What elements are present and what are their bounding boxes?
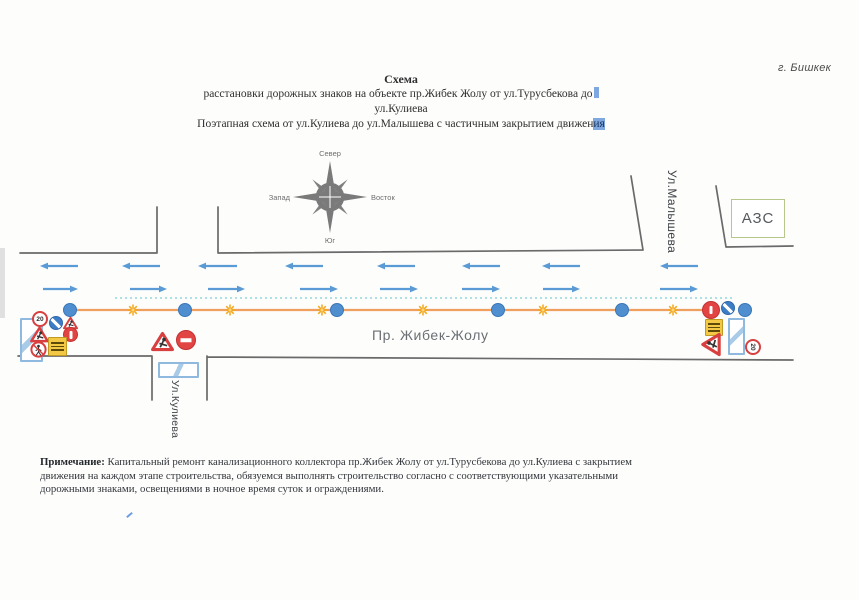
- speed-limit-value: 20: [750, 343, 757, 350]
- arrow-right-icon: [660, 286, 698, 293]
- no-entry-brick-sign-icon: [176, 330, 196, 350]
- arrow-left-icon: [198, 263, 237, 270]
- flasher-lamp-icon: [225, 305, 235, 316]
- note-paragraph: Примечание: Капитальный ремонт канализац…: [40, 456, 648, 497]
- gas-station-box: АЗС: [731, 199, 785, 238]
- guard-post-dot-icon: [616, 304, 629, 317]
- no-entry-sign-right-icon: [702, 301, 720, 319]
- flasher-lamp-icon: [128, 305, 138, 316]
- guard-post-dot-icon: [331, 304, 344, 317]
- arrow-right-icon: [208, 286, 245, 293]
- arrow-left-icon: [285, 263, 323, 270]
- guard-post-dot-icon: [64, 304, 77, 317]
- arrow-left-icon: [462, 263, 500, 270]
- arrow-left-icon: [660, 263, 698, 270]
- arrow-left-icon: [542, 263, 580, 270]
- compass-east-label: Восток: [371, 193, 395, 202]
- arrow-left-icon: [122, 263, 160, 270]
- arrow-right-icon: [43, 286, 78, 293]
- arrow-right-icon: [300, 286, 338, 293]
- detour-direction-sign-right-icon: [721, 301, 735, 315]
- gas-station-label: АЗС: [742, 210, 775, 227]
- road-name-label: Пр. Жибек-Жолу: [372, 327, 489, 343]
- detour-direction-sign-icon: [49, 316, 63, 330]
- roadworks-sign-kulieva-icon: [151, 331, 174, 352]
- flasher-lamp-icon: [418, 305, 428, 316]
- street-label-kulieva: Ул.Кулиева: [169, 380, 181, 438]
- flasher-lamp-icon: [538, 305, 548, 316]
- note-text: Капитальный ремонт канализационного колл…: [40, 456, 632, 495]
- compass-south-label: Юг: [325, 236, 336, 245]
- compass-rose-icon: [293, 161, 367, 233]
- guard-post-dot-icon: [179, 304, 192, 317]
- guard-post-dot-icon: [492, 304, 505, 317]
- arrow-right-icon: [380, 286, 418, 293]
- work-zone-line: [64, 304, 752, 317]
- flasher-lamp-icon: [317, 305, 327, 316]
- speed-limit-value: 20: [36, 316, 43, 323]
- arrow-right-icon: [462, 286, 500, 293]
- arrow-right-icon: [543, 286, 580, 293]
- speed-limit-20-sign-icon: 20: [32, 311, 48, 327]
- arrow-left-icon: [40, 263, 78, 270]
- compass-north-label: Север: [319, 149, 341, 158]
- road-diagram-canvas: Север Юг Запад Восток: [0, 0, 859, 600]
- guard-post-dot-icon: [739, 304, 752, 317]
- barrier-board-right-icon: [728, 318, 745, 355]
- work-info-board-left-icon: [48, 337, 67, 356]
- scanned-scheme-page: Схема расстановки дорожных знаков на объ…: [0, 0, 859, 600]
- traffic-flow-arrows: [40, 263, 698, 293]
- roadworks-sign-right-icon: [701, 333, 722, 357]
- flasher-lamp-icon: [668, 305, 678, 316]
- arrow-left-icon: [377, 263, 415, 270]
- arrow-right-icon: [130, 286, 167, 293]
- street-label-malysheva: Ул.Малышева: [665, 170, 679, 253]
- note-label: Примечание:: [40, 456, 105, 468]
- speed-limit-20-sign-right-icon: 20: [745, 339, 761, 355]
- compass-west-label: Запад: [269, 193, 291, 202]
- no-pedestrians-sign-icon: [30, 341, 47, 358]
- barrier-board-kulieva-icon: [158, 362, 199, 378]
